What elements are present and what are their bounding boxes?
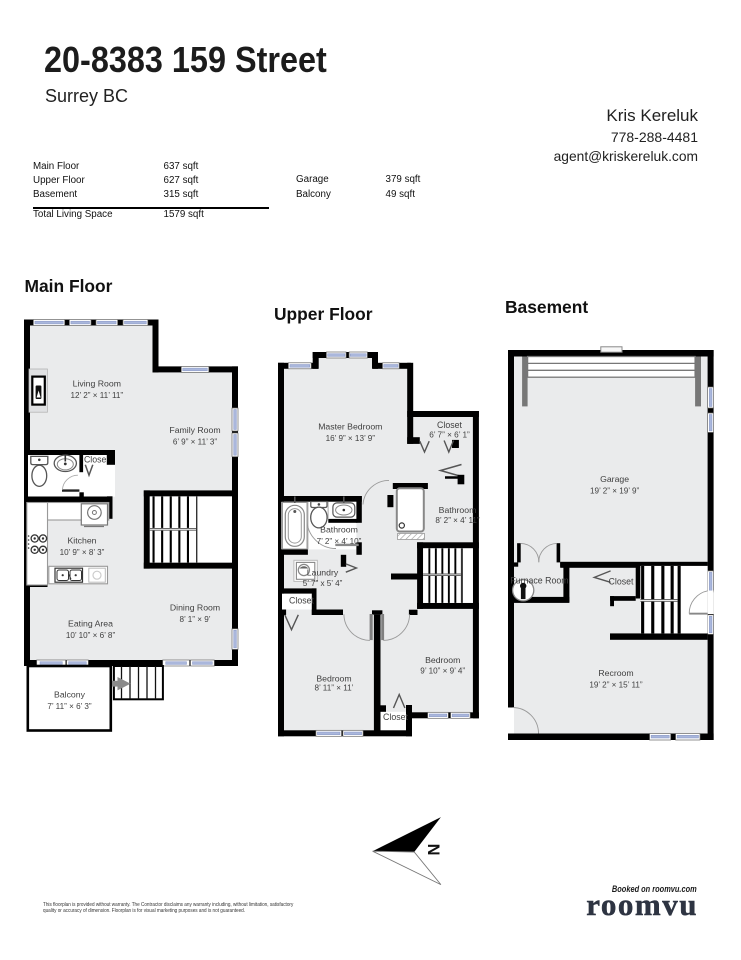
svg-text:N: N <box>424 844 442 856</box>
svg-text:Dining Room: Dining Room <box>170 603 220 613</box>
svg-text:Master Bedroom: Master Bedroom <box>318 422 382 432</box>
svg-text:Closet: Closet <box>383 712 408 722</box>
svg-text:6’ 9” × 11’ 3”: 6’ 9” × 11’ 3” <box>173 438 217 447</box>
svg-text:5’ 7” x 5’ 4”: 5’ 7” x 5’ 4” <box>303 579 343 588</box>
svg-text:Bathroom: Bathroom <box>439 505 477 515</box>
svg-text:Closet: Closet <box>437 420 462 430</box>
svg-text:19’ 2” × 19’ 9”: 19’ 2” × 19’ 9” <box>590 487 640 496</box>
svg-text:Bathroom: Bathroom <box>320 525 358 535</box>
svg-text:Garage: Garage <box>600 474 629 484</box>
svg-text:16’ 9” × 13’ 9”: 16’ 9” × 13’ 9” <box>326 434 376 443</box>
svg-text:Closet: Closet <box>609 577 634 587</box>
svg-text:Balcony: Balcony <box>54 690 86 700</box>
svg-text:Bedroom: Bedroom <box>425 655 460 665</box>
svg-text:Family Room: Family Room <box>169 425 220 435</box>
svg-text:7’ 2” × 4’ 10”: 7’ 2” × 4’ 10” <box>317 537 362 546</box>
svg-text:8’ 11” × 11’: 8’ 11” × 11’ <box>315 684 354 693</box>
svg-text:Kitchen: Kitchen <box>68 536 97 546</box>
svg-text:19’ 2” × 15’ 11”: 19’ 2” × 15’ 11” <box>589 681 643 690</box>
svg-text:10’ 9” × 8’ 3”: 10’ 9” × 8’ 3” <box>60 548 105 557</box>
svg-text:Laundry: Laundry <box>307 568 339 578</box>
svg-text:Furnace Room: Furnace Room <box>510 576 568 586</box>
svg-text:12’ 2” × 11’ 11”: 12’ 2” × 11’ 11” <box>70 391 123 400</box>
svg-text:Living Room: Living Room <box>73 379 121 389</box>
svg-text:9’ 10” × 9’ 4”: 9’ 10” × 9’ 4” <box>420 667 465 676</box>
svg-text:Bedroom: Bedroom <box>316 674 351 684</box>
svg-text:Close: Close <box>84 455 107 465</box>
svg-text:8’ 1” × 9’: 8’ 1” × 9’ <box>179 615 210 624</box>
svg-text:8’ 2” × 4’ 11”: 8’ 2” × 4’ 11” <box>435 516 479 525</box>
svg-text:Recroom: Recroom <box>598 668 633 678</box>
svg-text:7’ 11” × 6’ 3”: 7’ 11” × 6’ 3” <box>47 702 91 711</box>
svg-text:Eating Area: Eating Area <box>68 619 113 629</box>
svg-text:Closet: Closet <box>289 596 314 606</box>
svg-text:6’ 7” × 6’ 1”: 6’ 7” × 6’ 1” <box>429 431 470 440</box>
svg-text:10’ 10” × 6’ 8”: 10’ 10” × 6’ 8” <box>66 631 116 640</box>
